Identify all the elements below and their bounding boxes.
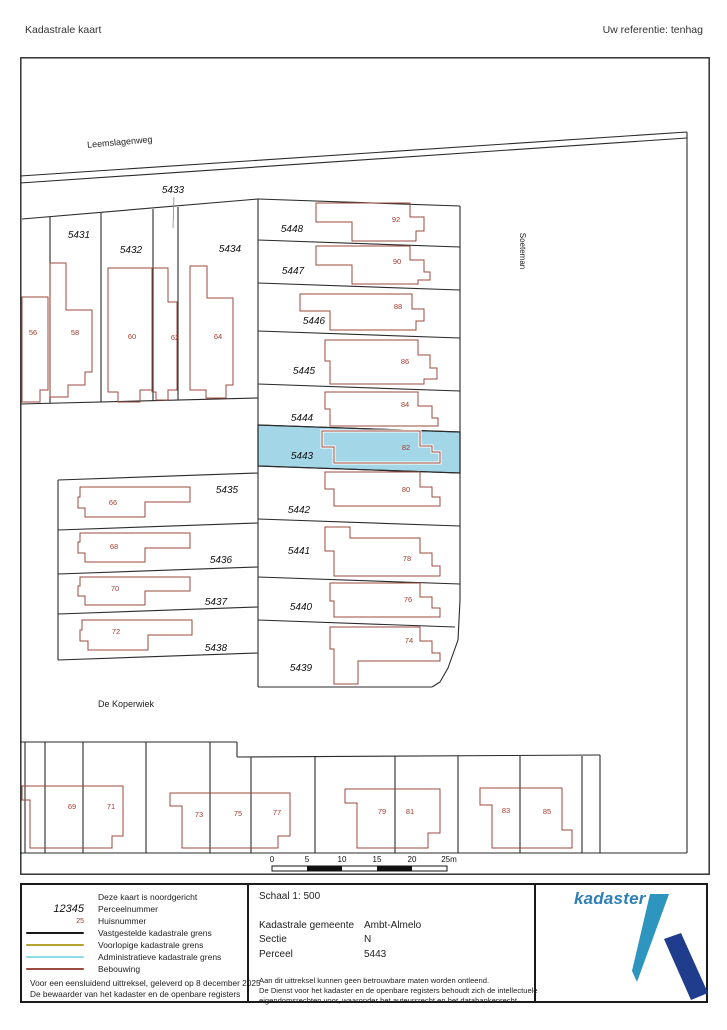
info-row: Perceel5443 bbox=[259, 947, 421, 962]
house-number-label: 75 bbox=[234, 809, 242, 818]
kadaster-logo: kadaster bbox=[536, 885, 706, 1001]
disclaimer-line: De Dienst voor het kadaster en de openba… bbox=[259, 986, 538, 996]
parcel-number-sample: 12345 bbox=[53, 903, 84, 915]
house-number-label: 70 bbox=[111, 584, 119, 593]
legend-item-label: Voorlopige kadastrale grens bbox=[98, 940, 203, 950]
legend-symbol bbox=[22, 956, 84, 958]
legend-symbol: 12345 bbox=[22, 903, 84, 915]
info-row-label: Perceel bbox=[259, 949, 364, 960]
scale-bar-tick-label: 25m bbox=[441, 855, 457, 864]
info-row-label: Kadastrale gemeente bbox=[259, 920, 364, 931]
map-info-panel: Deze kaart is noordgericht12345Perceelnu… bbox=[20, 883, 708, 1003]
legend-symbol bbox=[22, 944, 84, 946]
legend-item-label: Deze kaart is noordgericht bbox=[98, 892, 197, 902]
street-name-label: Soeteman bbox=[518, 233, 527, 269]
legend-item-label: Huisnummer bbox=[98, 916, 146, 926]
house-number-label: 83 bbox=[502, 806, 510, 815]
scale-label: Schaal 1: 500 bbox=[259, 891, 320, 902]
house-number-label: 81 bbox=[406, 807, 414, 816]
parcel-number-label: 5439 bbox=[290, 663, 313, 674]
legend-line-swatch bbox=[26, 956, 84, 958]
scale-bar-tick-label: 20 bbox=[408, 855, 417, 864]
house-number-label: 85 bbox=[543, 807, 551, 816]
house-number-label: 82 bbox=[402, 443, 410, 452]
house-number-label: 58 bbox=[71, 328, 79, 337]
parcel-number-label: 5431 bbox=[68, 230, 90, 241]
legend-item-label: Vastgestelde kadastrale grens bbox=[98, 928, 212, 938]
legend-item: Deze kaart is noordgericht bbox=[22, 891, 247, 903]
issuance-note-line: Voor een eensluidend uittreksel, gelever… bbox=[30, 978, 261, 989]
house-number-label: 66 bbox=[109, 498, 117, 507]
parcel-number-label: 5445 bbox=[293, 366, 316, 377]
parcel-number-label: 5438 bbox=[205, 643, 228, 654]
parcel-info-section: Schaal 1: 500 Kadastrale gemeenteAmbt-Al… bbox=[249, 885, 534, 1001]
parcel-number-label: 5436 bbox=[210, 555, 233, 566]
parcel-info-rows: Kadastrale gemeenteAmbt-AlmeloSectieNPer… bbox=[259, 918, 421, 962]
disclaimer-line: eigendomsrechten voor, waaronder het aut… bbox=[259, 996, 538, 1006]
cadastral-map-svg: 5431543254335434543554365437543854395440… bbox=[20, 57, 710, 875]
cadastral-map: 5431543254335434543554365437543854395440… bbox=[20, 57, 710, 875]
house-number-label: 71 bbox=[107, 802, 115, 811]
parcel-number-label: 5446 bbox=[303, 316, 326, 327]
house-number-label: 90 bbox=[393, 257, 401, 266]
house-number-label: 78 bbox=[403, 554, 411, 563]
info-row-label: Sectie bbox=[259, 934, 364, 945]
scale-bar-tick-label: 15 bbox=[373, 855, 382, 864]
parcel-number-label: 5444 bbox=[291, 413, 314, 424]
parcel-number-label: 5432 bbox=[120, 245, 143, 256]
house-number-label: 88 bbox=[394, 302, 402, 311]
house-number-label: 76 bbox=[404, 595, 412, 604]
info-row-value: Ambt-Almelo bbox=[364, 920, 421, 931]
parcel-number-label: 5441 bbox=[288, 546, 310, 557]
house-number-label: 84 bbox=[401, 400, 409, 409]
house-number-label: 73 bbox=[195, 810, 203, 819]
house-number-label: 56 bbox=[29, 328, 37, 337]
parcel-number-label: 5433 bbox=[162, 185, 185, 196]
parcel-number-label: 5434 bbox=[219, 244, 242, 255]
info-row-value: N bbox=[364, 934, 371, 945]
reference-label: Uw referentie: tenhag bbox=[603, 24, 703, 36]
scale-bar-track bbox=[272, 866, 447, 871]
logo-navy-bar bbox=[664, 933, 708, 1000]
info-row: SectieN bbox=[259, 933, 421, 948]
legend-line-swatch bbox=[26, 944, 84, 946]
scale-bar-segment bbox=[307, 866, 342, 871]
house-number-label: 77 bbox=[273, 808, 281, 817]
scale-bar-tick-label: 10 bbox=[338, 855, 347, 864]
legend-symbol bbox=[22, 968, 84, 970]
parcel-number-label: 5442 bbox=[288, 505, 311, 516]
page-title: Kadastrale kaart bbox=[25, 24, 101, 36]
parcel-number-label: 5443 bbox=[291, 451, 314, 462]
legend-symbol: 25 bbox=[22, 918, 84, 925]
legend-symbol bbox=[22, 932, 84, 934]
house-number-label: 72 bbox=[112, 627, 120, 636]
legend-item: Bebouwing bbox=[22, 963, 247, 975]
logo-teal-blade bbox=[632, 894, 669, 982]
legend-line-swatch bbox=[26, 968, 84, 970]
issuance-note-line: De bewaarder van het kadaster en de open… bbox=[30, 989, 261, 1000]
parcel-number-label: 5448 bbox=[281, 224, 304, 235]
legend-item-label: Administratieve kadastrale grens bbox=[98, 952, 221, 962]
house-number-label: 64 bbox=[214, 332, 222, 341]
house-number-sample: 25 bbox=[76, 918, 84, 925]
legend-item-label: Bebouwing bbox=[98, 964, 140, 974]
info-row-value: 5443 bbox=[364, 949, 386, 960]
legend-line-swatch bbox=[26, 932, 84, 934]
legend-item: Administratieve kadastrale grens bbox=[22, 951, 247, 963]
house-number-label: 62 bbox=[171, 333, 179, 342]
info-row: Kadastrale gemeenteAmbt-Almelo bbox=[259, 918, 421, 933]
parcel-number-label: 5437 bbox=[205, 597, 228, 608]
house-number-label: 86 bbox=[401, 357, 409, 366]
disclaimer-text: Aan dit uittreksel kunnen geen betrouwba… bbox=[259, 976, 538, 1005]
legend-item: Vastgestelde kadastrale grens bbox=[22, 927, 247, 939]
disclaimer-line: Aan dit uittreksel kunnen geen betrouwba… bbox=[259, 976, 538, 986]
parcel-number-label: 5435 bbox=[216, 485, 239, 496]
kadaster-logo-icon bbox=[621, 887, 721, 1003]
issuance-note: Voor een eensluidend uittreksel, gelever… bbox=[30, 978, 261, 1000]
parcel-number-label: 5440 bbox=[290, 602, 313, 613]
house-number-label: 79 bbox=[378, 807, 386, 816]
scale-bar-tick-label: 0 bbox=[270, 855, 275, 864]
house-number-label: 74 bbox=[405, 636, 413, 645]
street-name-label: De Koperwiek bbox=[98, 699, 155, 709]
scale-bar-tick-label: 5 bbox=[305, 855, 310, 864]
parcel-number-label: 5447 bbox=[282, 266, 305, 277]
legend-item-label: Perceelnummer bbox=[98, 904, 158, 914]
house-number-label: 60 bbox=[128, 332, 136, 341]
house-number-label: 68 bbox=[110, 542, 118, 551]
house-number-label: 92 bbox=[392, 215, 400, 224]
legend-item: 25Huisnummer bbox=[22, 915, 247, 927]
legend: Deze kaart is noordgericht12345Perceelnu… bbox=[22, 885, 247, 1001]
house-number-label: 69 bbox=[68, 802, 76, 811]
legend-item: 12345Perceelnummer bbox=[22, 903, 247, 915]
scale-bar-segment bbox=[377, 866, 412, 871]
house-number-label: 80 bbox=[402, 485, 410, 494]
legend-item: Voorlopige kadastrale grens bbox=[22, 939, 247, 951]
